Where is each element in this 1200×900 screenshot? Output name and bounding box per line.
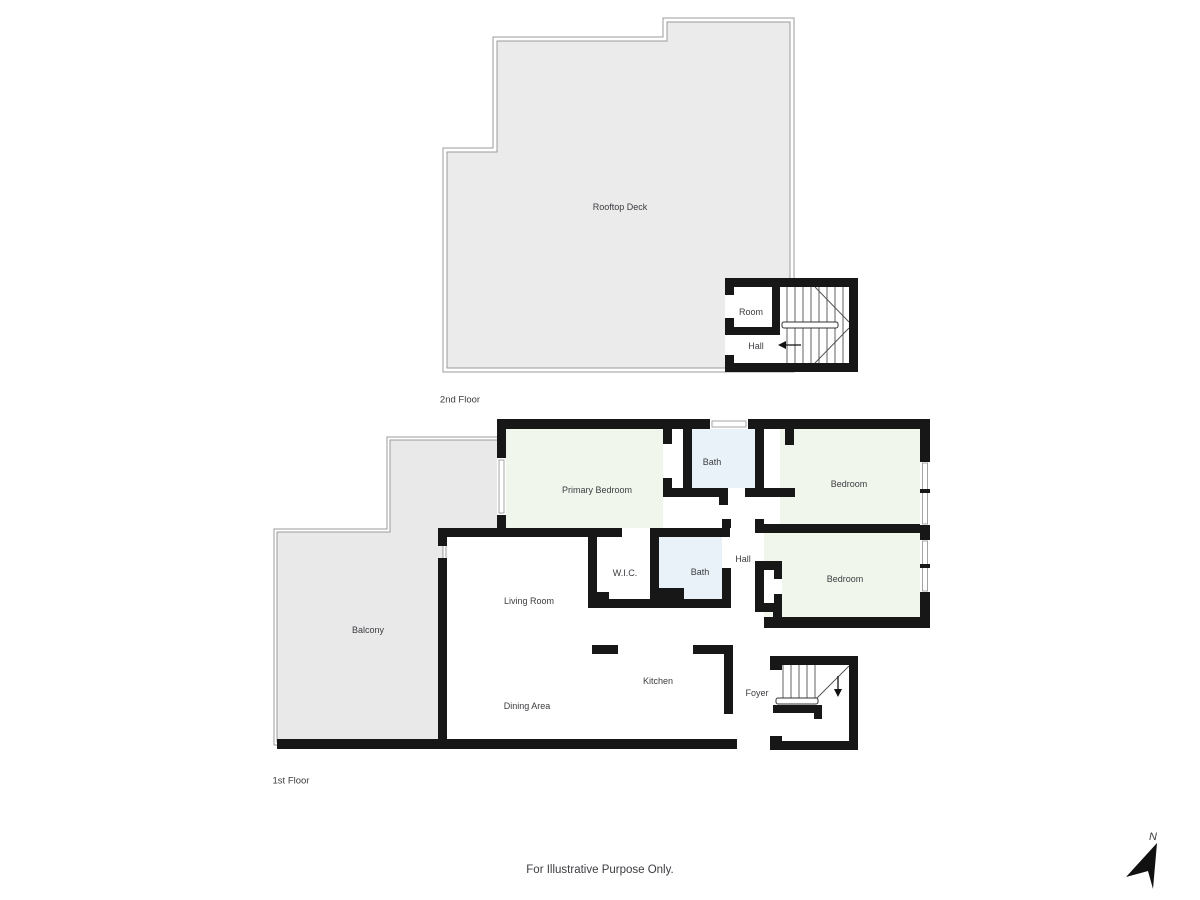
living-room-label: Living Room (504, 596, 554, 606)
bedroom-upper-label: Bedroom (831, 479, 868, 489)
kitchen-label: Kitchen (643, 676, 673, 686)
room-fill-bath-upper (692, 429, 755, 488)
floor-plan-canvas: Rooftop Deck (0, 0, 1200, 900)
floor-plan-page: Rooftop Deck (0, 0, 1200, 900)
hall-label-2f: Hall (748, 341, 764, 351)
north-arrow-icon (1126, 843, 1157, 889)
room-label: Room (739, 307, 763, 317)
bath-upper-label: Bath (703, 457, 722, 467)
balcony-area (277, 440, 502, 742)
disclaimer-text: For Illustrative Purpose Only. (526, 864, 673, 876)
foyer-stair-handrail (776, 698, 818, 704)
foyer-stairs-glyph (773, 665, 849, 719)
second-floor-stairwell: Room Hall (725, 278, 858, 372)
foyer-stair-direction-arrow (834, 689, 842, 697)
room-fill-primary-bedroom (506, 429, 663, 528)
compass-north-label: N (1149, 831, 1157, 843)
room-fill-bedroom-upper (780, 429, 920, 524)
north-compass: N (1126, 831, 1157, 889)
second-floor-plan: Rooftop Deck (440, 18, 858, 405)
rooftop-deck-label: Rooftop Deck (593, 202, 648, 212)
hall-label-1f: Hall (735, 554, 751, 564)
wic-label: W.I.C. (613, 568, 638, 578)
foyer-label: Foyer (745, 688, 768, 698)
bath-middle-label: Bath (691, 567, 710, 577)
first-floor-plan: Primary Bedroom Bath Bedroom Bedroom Hal… (273, 419, 930, 786)
first-floor-caption: 1st Floor (273, 775, 310, 786)
dining-area-label: Dining Area (504, 701, 551, 711)
bedroom-lower-label: Bedroom (827, 574, 864, 584)
primary-bedroom-label: Primary Bedroom (562, 485, 632, 495)
second-floor-caption: 2nd Floor (440, 394, 480, 405)
stair-handrail (782, 322, 838, 328)
balcony-label: Balcony (352, 625, 385, 635)
